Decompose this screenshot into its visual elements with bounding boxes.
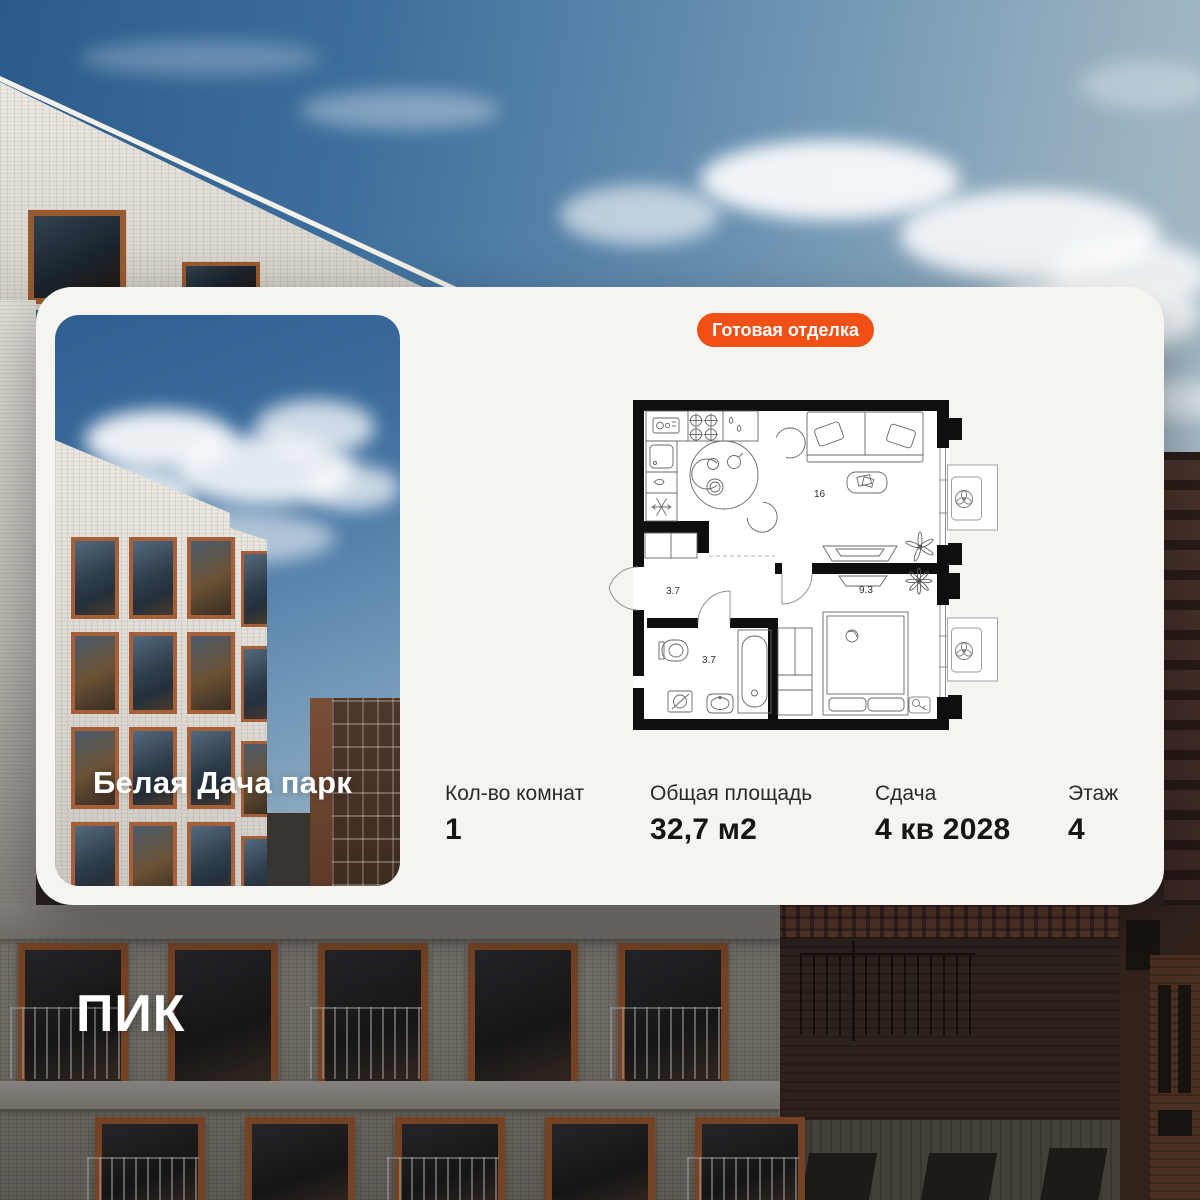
stat-delivery-label: Сдача	[875, 782, 1010, 806]
window	[71, 537, 119, 619]
cloud	[700, 140, 960, 220]
stat-area-label: Общая площадь	[650, 782, 812, 806]
room-label-bathroom: 3.7	[702, 655, 716, 666]
cloud	[300, 90, 500, 130]
cloud	[255, 400, 375, 455]
finishing-badge: Готовая отделка	[697, 313, 874, 347]
cloud	[1080, 60, 1200, 110]
listing-card[interactable]: Белая Дача парк Готовая отделка	[36, 287, 1164, 905]
stat-area-value: 32,7 м2	[650, 813, 812, 847]
floor-plan: 16 9.3 3.7 3.7	[596, 398, 1000, 732]
cloud	[560, 185, 720, 245]
stat-delivery: Сдача 4 кв 2028	[875, 782, 1010, 847]
window	[241, 646, 272, 722]
stat-floor-label: Этаж	[1068, 782, 1118, 806]
window	[129, 822, 177, 886]
room-label-bedroom: 9.3	[859, 585, 873, 596]
window	[129, 632, 177, 714]
stat-floor: Этаж 4	[1068, 782, 1118, 847]
stat-delivery-value: 4 кв 2028	[875, 813, 1010, 847]
room-label-hallway: 3.7	[666, 586, 680, 597]
wall-niche	[633, 676, 644, 688]
stat-rooms: Кол-во комнат 1	[445, 782, 584, 847]
window	[71, 822, 119, 886]
finishing-badge-label: Готовая отделка	[712, 320, 859, 341]
stat-floor-value: 4	[1068, 813, 1118, 847]
window	[71, 632, 119, 714]
stat-area: Общая площадь 32,7 м2	[650, 782, 812, 847]
cloud	[305, 465, 400, 510]
background-left-strip	[0, 300, 36, 910]
background-bottom-buildings	[0, 905, 1200, 1200]
photo-low-building	[267, 813, 310, 886]
dusk-overlay	[0, 905, 1200, 1200]
window	[187, 632, 235, 714]
project-name: Белая Дача парк	[93, 765, 352, 801]
project-photo: Белая Дача парк	[55, 315, 400, 886]
window	[187, 537, 235, 619]
window	[129, 537, 177, 619]
cloud	[80, 40, 320, 76]
stat-rooms-value: 1	[445, 813, 584, 847]
background-right-tower	[1164, 452, 1200, 910]
pik-logo: ПИК	[76, 984, 186, 1044]
window	[187, 822, 235, 886]
stat-rooms-label: Кол-во комнат	[445, 782, 584, 806]
room-label-living: 16	[814, 489, 826, 500]
